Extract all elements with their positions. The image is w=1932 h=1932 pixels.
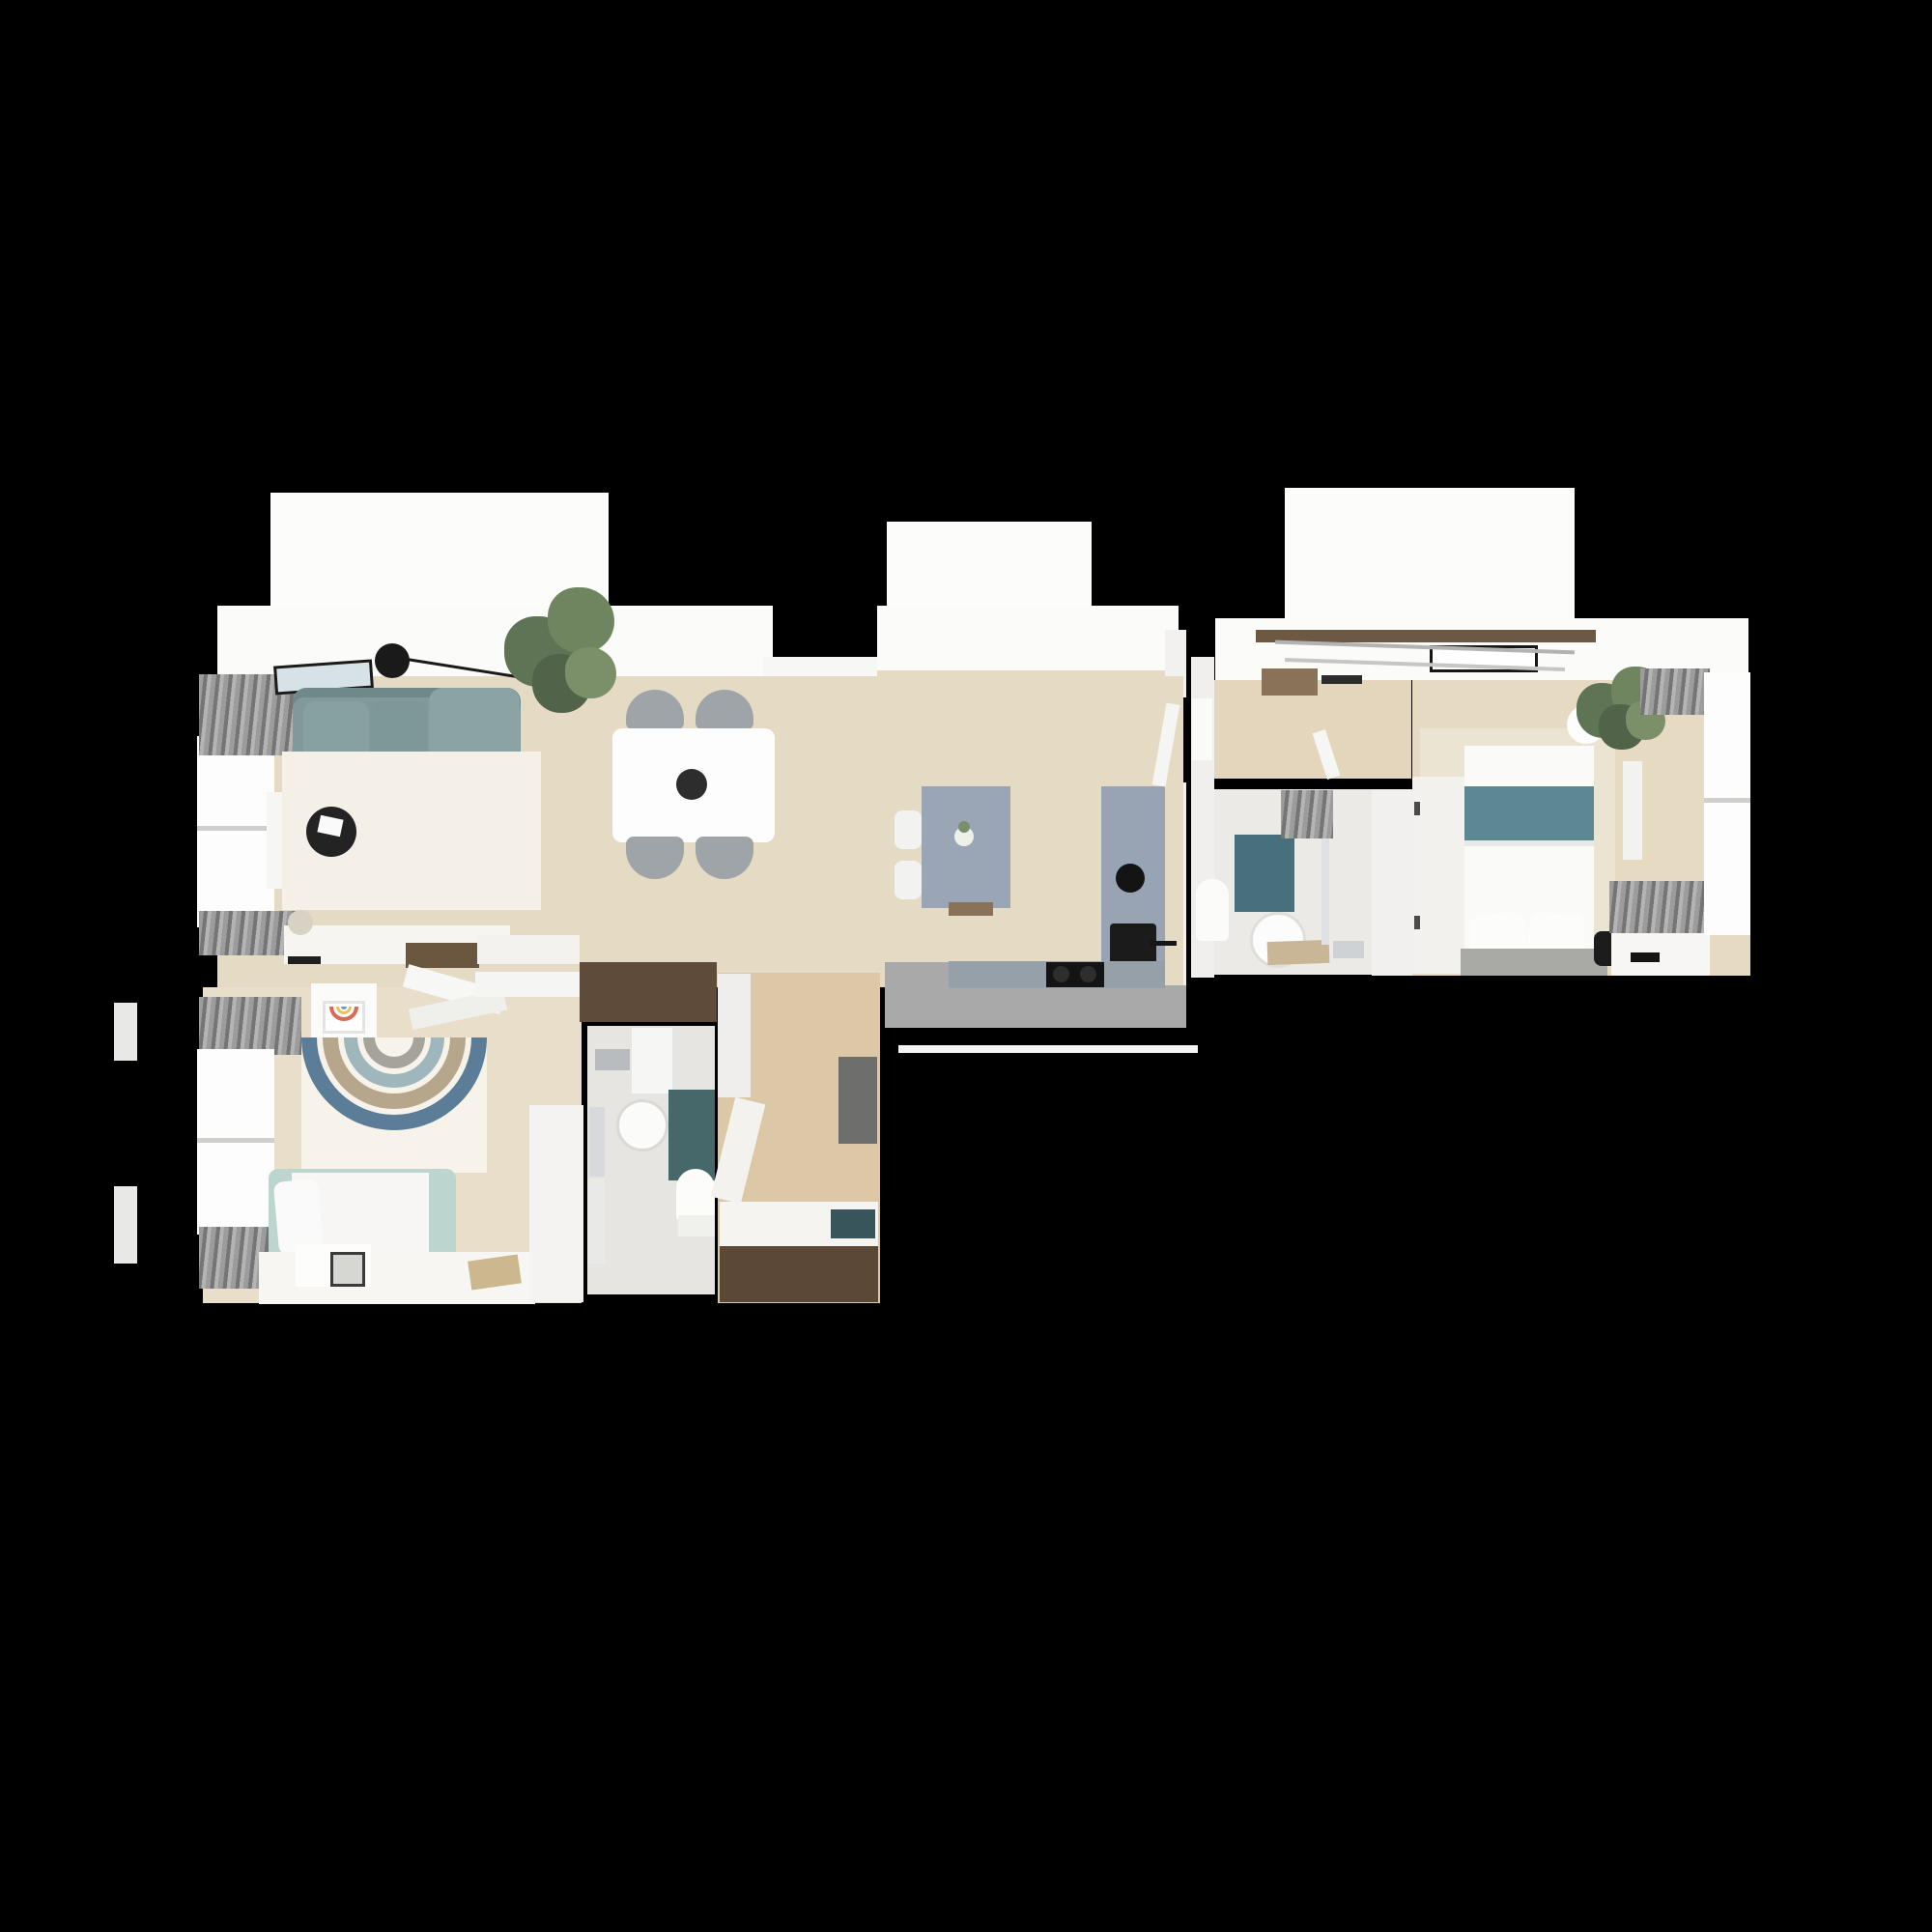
kids-toy xyxy=(330,1252,365,1287)
stool-1 xyxy=(895,810,922,849)
window-sill-spur-2 xyxy=(114,1186,137,1264)
toilet-small-tank xyxy=(678,1215,715,1236)
entry-doormat xyxy=(838,1057,877,1144)
bath-small-cabinet xyxy=(632,1028,672,1094)
curtain-bedroom-top xyxy=(1640,668,1710,715)
corridor-west-cabinet xyxy=(1192,698,1212,760)
kitchen-gray-floor-band xyxy=(885,985,1186,1028)
burner-1 xyxy=(1053,966,1069,982)
bath-small-mirror xyxy=(589,1107,605,1177)
bath-main-art-teal xyxy=(1235,835,1294,912)
stool-2 xyxy=(895,861,922,899)
entry-bench-base xyxy=(720,1246,878,1302)
console-tray xyxy=(288,956,321,964)
wardrobe-hangers xyxy=(1321,675,1362,684)
kitchen-island xyxy=(922,786,1010,908)
kitchen-gray-left-notch xyxy=(885,962,949,987)
sink-faucet xyxy=(1150,941,1177,946)
kids-rainbow-rug xyxy=(301,1037,487,1130)
bedroom-desk xyxy=(1611,933,1710,976)
hall-cabinet-brown xyxy=(580,962,717,1022)
plant-living-leaves-1 xyxy=(548,587,613,653)
wall-white-wardrobe-upper xyxy=(1285,488,1575,623)
bath-small-sink xyxy=(616,1099,668,1151)
kids-shelf-band xyxy=(475,972,582,997)
window-sill-spur-1 xyxy=(114,1003,137,1061)
cabinet-white-living xyxy=(477,935,580,964)
bedroom-radiator xyxy=(1623,761,1642,860)
console-vase xyxy=(288,910,313,935)
bed-headboard xyxy=(1461,949,1607,976)
bed-fold-line xyxy=(1464,840,1594,846)
window-kids-mullion xyxy=(197,1138,274,1143)
south-wall-highlight xyxy=(898,1045,1198,1053)
radiator-living xyxy=(267,792,282,889)
wall-white-kitchen-north xyxy=(877,606,1179,673)
curtain-kids-top xyxy=(199,997,301,1055)
curtain-bedroom-bottom xyxy=(1609,881,1710,933)
bath-main-counter xyxy=(1267,940,1330,965)
island-flowers xyxy=(958,821,970,833)
window-bedroom xyxy=(1704,672,1750,935)
window-bedroom-mullion xyxy=(1704,798,1750,803)
plant-living xyxy=(502,587,616,746)
kids-drawing-rainbow xyxy=(329,1007,358,1021)
bath-small-towel-bar xyxy=(587,1179,605,1264)
wardrobe-shelf-brown xyxy=(1262,668,1318,696)
floor-lamp-head xyxy=(375,643,410,678)
burner-2 xyxy=(1080,966,1096,982)
shower-fixture-main xyxy=(1333,941,1364,958)
shower-fixture-small xyxy=(595,1049,630,1070)
wall-white-notch-bridge xyxy=(763,657,881,678)
toilet-main xyxy=(1196,879,1229,941)
dining-bowl xyxy=(676,769,707,800)
entry-bench-cushion xyxy=(831,1209,875,1238)
closet-hinge-2 xyxy=(1414,916,1420,929)
bath-small-towel xyxy=(668,1090,715,1180)
kettle xyxy=(1116,864,1145,893)
kids-wardrobe xyxy=(529,1105,583,1302)
bath-main-east-wall xyxy=(1372,789,1412,976)
bedroom-glasses xyxy=(1631,952,1660,962)
bed-teal-band xyxy=(1464,786,1594,842)
floor-plan-canvas xyxy=(0,0,1932,1932)
window-living-mullion xyxy=(197,826,274,831)
plant-living-leaves-3 xyxy=(565,647,616,698)
window-living-left xyxy=(197,736,274,927)
shower-curtain xyxy=(1281,790,1333,838)
wall-white-kitchen-upper xyxy=(887,522,1092,611)
cabinet-brown-living xyxy=(406,943,479,968)
entry-wall-band xyxy=(718,974,751,1097)
closet-hinge-1 xyxy=(1414,802,1420,815)
kitchen-island-base xyxy=(949,902,993,916)
floor-kitchen-north-strip xyxy=(877,670,1165,680)
bedroom-closet xyxy=(1412,777,1464,974)
